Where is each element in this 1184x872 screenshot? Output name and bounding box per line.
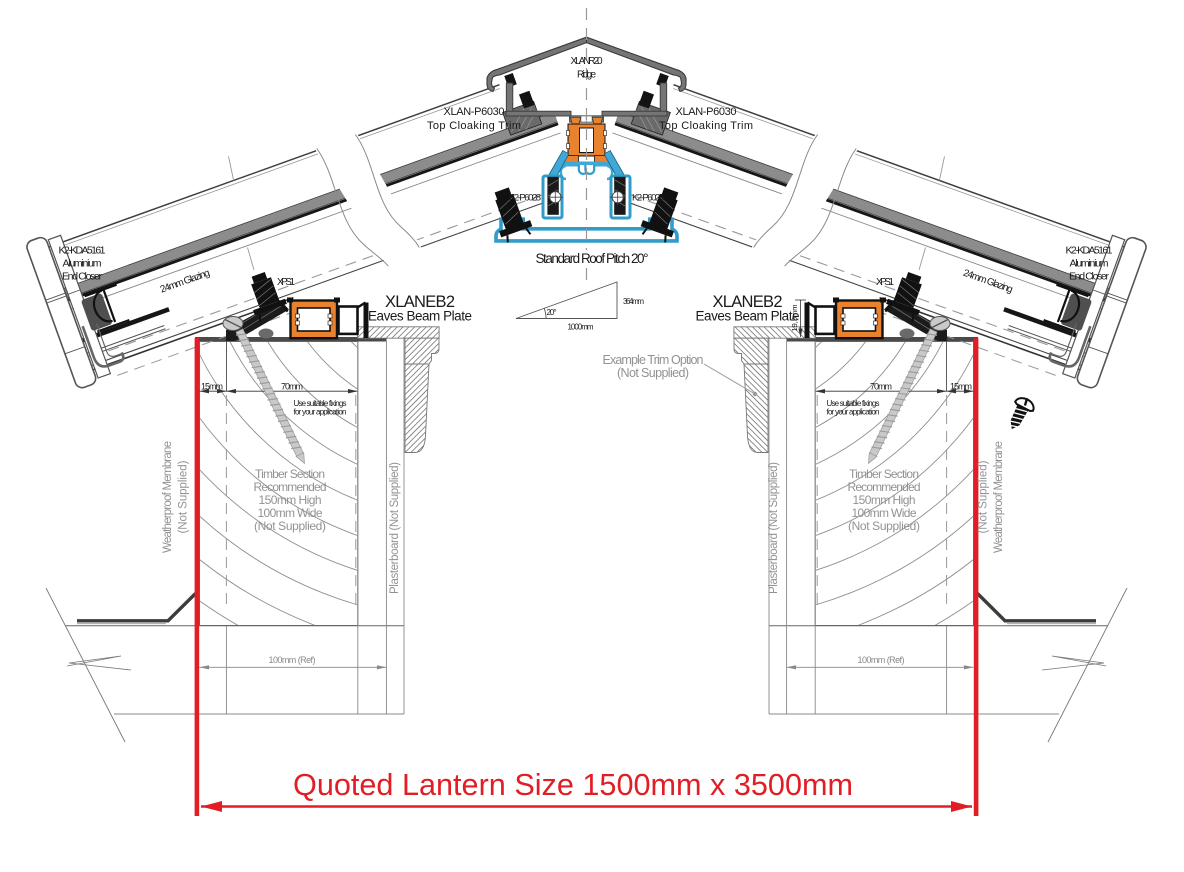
svg-text:Eaves Beam Plate: Eaves Beam Plate <box>368 309 472 324</box>
svg-text:364mm: 364mm <box>623 297 644 306</box>
svg-text:100mm Wide: 100mm Wide <box>852 506 917 520</box>
svg-text:XPS1: XPS1 <box>876 277 894 288</box>
svg-text:Standard Roof Pitch 20°: Standard Roof Pitch 20° <box>536 251 649 266</box>
svg-text:Plasterboard (Not Supplied): Plasterboard (Not Supplied) <box>768 462 780 594</box>
svg-text:K2-P6028: K2-P6028 <box>509 193 541 204</box>
svg-text:Timber Section: Timber Section <box>255 467 325 481</box>
svg-text:Eaves Beam Plate: Eaves Beam Plate <box>696 309 800 324</box>
svg-text:Weatherproof Membrane: Weatherproof Membrane <box>993 441 1005 553</box>
svg-text:(Not Supplied): (Not Supplied) <box>978 460 990 533</box>
svg-text:End Closer: End Closer <box>1069 271 1110 283</box>
svg-text:100mm (Ref): 100mm (Ref) <box>858 655 905 665</box>
svg-text:K2-P6028: K2-P6028 <box>632 193 664 204</box>
svg-text:(Not Supplied): (Not Supplied) <box>617 366 689 380</box>
svg-text:Recommended: Recommended <box>848 480 921 494</box>
svg-text:Timber Section: Timber Section <box>849 467 919 481</box>
svg-text:Recommended: Recommended <box>254 480 327 494</box>
svg-text:Aluminium: Aluminium <box>63 258 102 270</box>
svg-text:Top Cloaking Trim: Top Cloaking Trim <box>659 120 753 132</box>
svg-text:100mm Wide: 100mm Wide <box>258 506 323 520</box>
svg-text:15mm: 15mm <box>950 382 972 392</box>
svg-text:XLAN-P6030: XLAN-P6030 <box>444 106 505 118</box>
svg-text:XLANR20: XLANR20 <box>571 56 603 67</box>
svg-text:XPS1: XPS1 <box>277 277 295 288</box>
svg-text:K2-KDA5161: K2-KDA5161 <box>59 245 106 257</box>
svg-text:XLAN-P6030: XLAN-P6030 <box>676 106 737 118</box>
svg-text:Plasterboard (Not Supplied): Plasterboard (Not Supplied) <box>389 462 401 594</box>
svg-text:Aluminium: Aluminium <box>1070 258 1109 270</box>
svg-text:(Not Supplied): (Not Supplied) <box>254 519 326 533</box>
svg-text:Example Trim Option: Example Trim Option <box>603 353 704 367</box>
svg-text:1000mm: 1000mm <box>568 323 594 332</box>
svg-text:Top Cloaking Trim: Top Cloaking Trim <box>427 120 521 132</box>
svg-text:100mm (Ref): 100mm (Ref) <box>269 655 316 665</box>
svg-text:for your application: for your application <box>294 408 347 417</box>
svg-text:(Not Supplied): (Not Supplied) <box>178 460 190 533</box>
svg-text:70mm: 70mm <box>281 382 303 392</box>
svg-text:K2-KDA5161: K2-KDA5161 <box>1066 245 1113 257</box>
svg-text:150mm High: 150mm High <box>259 493 322 507</box>
svg-text:19,5mm: 19,5mm <box>790 304 799 331</box>
svg-text:Quoted Lantern Size 1500mm x 3: Quoted Lantern Size 1500mm x 3500mm <box>293 767 853 802</box>
svg-text:Ridge: Ridge <box>577 70 596 81</box>
svg-text:15mm: 15mm <box>201 382 223 392</box>
svg-text:70mm: 70mm <box>870 382 892 392</box>
svg-text:Weatherproof Membrane: Weatherproof Membrane <box>162 441 174 553</box>
svg-text:(Not Supplied): (Not Supplied) <box>848 519 920 533</box>
svg-text:20°: 20° <box>547 308 557 317</box>
svg-text:End Closer: End Closer <box>62 271 103 283</box>
svg-text:for your application: for your application <box>827 408 880 417</box>
svg-text:150mm High: 150mm High <box>853 493 916 507</box>
